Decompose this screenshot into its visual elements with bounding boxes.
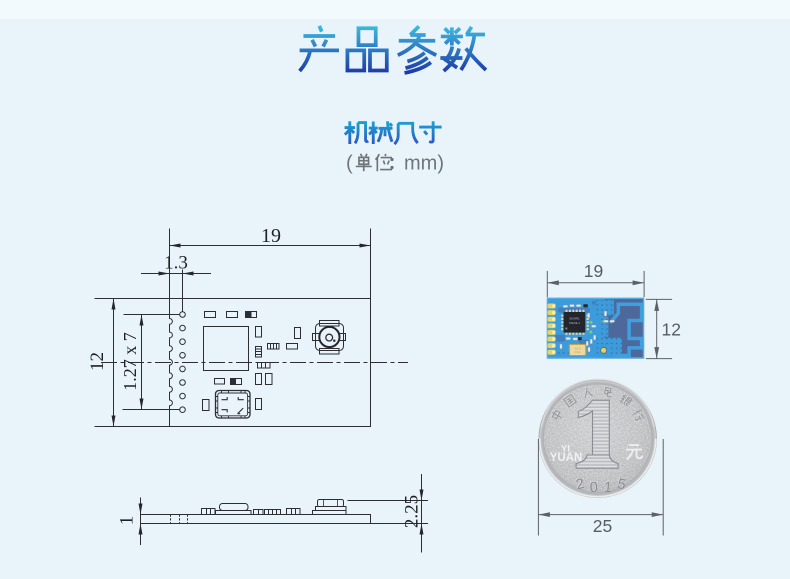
svg-text:0: 0 [589,480,598,497]
svg-text:12: 12 [662,319,681,339]
svg-text:1.27 x 7: 1.27 x 7 [120,332,140,391]
svg-text:25: 25 [593,516,612,536]
svg-text:12: 12 [87,352,108,371]
svg-text:mm): mm) [404,153,444,175]
svg-text:YUAN: YUAN [550,452,583,464]
svg-text:C6A: C6A [575,350,581,354]
svg-text:XN24L1: XN24L1 [569,321,580,325]
svg-text:SI24R1: SI24R1 [569,317,580,321]
svg-text:2.25: 2.25 [402,495,423,528]
svg-text:(: ( [346,153,353,175]
svg-text:1: 1 [117,516,138,526]
svg-text:19: 19 [261,225,281,247]
svg-text:19: 19 [584,261,603,281]
svg-text:1.3: 1.3 [164,253,188,274]
svg-text:1: 1 [603,480,612,497]
